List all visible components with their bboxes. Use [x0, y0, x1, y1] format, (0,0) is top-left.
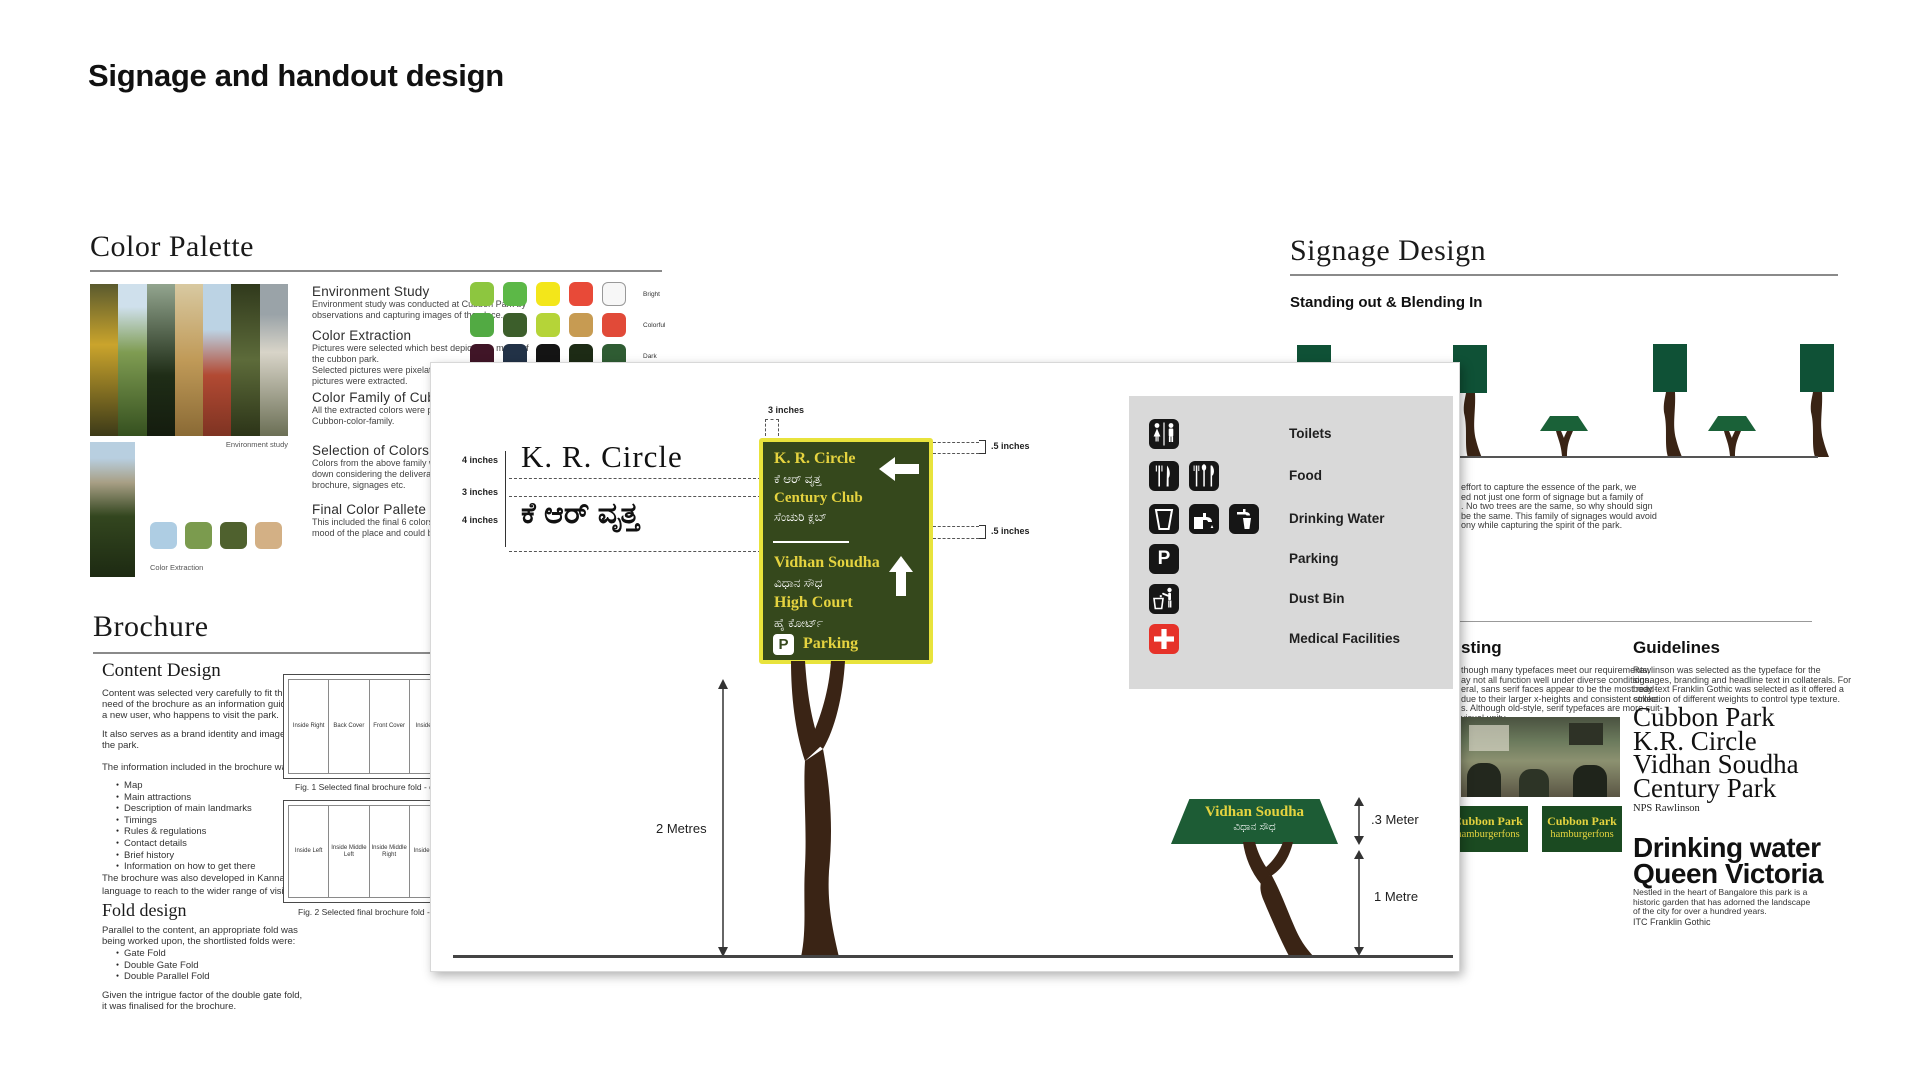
para-line: language to reach to the wider range of …	[102, 885, 302, 898]
section-divider-line	[1440, 621, 1812, 622]
sign-vidhan-soudha-kannada: ವಿಧಾನ ಸೌಧ	[774, 576, 822, 591]
swatch	[602, 313, 626, 337]
photo-slice	[118, 284, 146, 436]
bullet-item: Information on how to get there	[116, 861, 256, 873]
environment-study-photo	[90, 284, 288, 436]
extraction-swatch	[220, 522, 247, 549]
serif-specimen-caption: NPS Rawlinson	[1633, 803, 1700, 814]
cutlery-icon	[1189, 461, 1219, 491]
photo-slice	[175, 284, 203, 436]
photo-slice	[231, 284, 259, 436]
tall-tree-sign-3	[1648, 344, 1692, 459]
typeface-testing-photo	[1461, 717, 1620, 797]
tap-icon	[1189, 504, 1219, 534]
direction-sign: K. R. Circle ಕೆ ಆರ್ ವೃತ್ತ Century Club ಸ…	[759, 438, 933, 664]
guidelines-header: Guidelines	[1633, 638, 1720, 658]
typeface-testing-header: sting	[1461, 638, 1502, 658]
para-line: a new user, who happens to visit the par…	[102, 710, 305, 721]
fig-panel: Front Cover	[370, 680, 410, 773]
guidelines-body: Rawlinson was selected as the typeface f…	[1633, 666, 1851, 704]
brochure-underline	[93, 652, 438, 654]
badge-line2: hamburgerfons	[1448, 829, 1528, 840]
signage-design-underline	[1290, 274, 1838, 276]
dim-bracket	[979, 525, 986, 539]
para-line: it was finalised for the brochure.	[102, 1001, 302, 1012]
palette-swatch-grid: Bright Colorful Dark	[470, 282, 665, 368]
para-line: the park.	[102, 740, 299, 751]
dim-4-inches-top: 4 inches	[456, 455, 498, 465]
guide-dash	[509, 478, 761, 479]
brochure-para4: The brochure was also developed in Kanna…	[102, 872, 302, 898]
dim-bracket	[979, 440, 986, 454]
franklin-specimen-body: Nestled in the heart of Bangalore this p…	[1633, 888, 1810, 917]
dim-1-metre: 1 Metre	[1374, 889, 1418, 904]
extraction-swatches	[150, 522, 282, 549]
sign-century-club: Century Club	[774, 490, 863, 507]
medical-cross-icon	[1149, 624, 1179, 654]
fig-panel: Inside Left	[289, 806, 329, 897]
extraction-caption: Color Extraction	[150, 563, 203, 572]
dim-3-inches-border: 3 inches	[768, 405, 804, 415]
legend-label-parking: Parking	[1289, 544, 1339, 574]
color-extraction-photo	[90, 442, 135, 577]
swatch	[536, 282, 560, 306]
para-line: Content was selected very carefully to f…	[102, 688, 305, 699]
photo-detail	[1469, 725, 1509, 751]
brochure-para3: The information included in the brochure…	[102, 762, 294, 773]
page: Signage and handout design Color Palette…	[0, 0, 1920, 1080]
small-sign-kannada: ವಿಧಾನ ಸೌಧ	[1171, 821, 1338, 834]
color-palette-header: Color Palette	[90, 230, 254, 264]
para-line: Given the intrigue factor of the double …	[102, 990, 302, 1001]
spec-kannada-text: ಕೆ ಆರ್ ವೃತ್ತ	[521, 497, 639, 531]
swatch-row-label: Dark	[643, 353, 657, 360]
swatch	[503, 282, 527, 306]
guide-dash	[933, 526, 979, 527]
extraction-swatch	[150, 522, 177, 549]
swatch	[569, 313, 593, 337]
swatch-row-colorful: Colorful	[470, 313, 665, 337]
bullet-item: Rules & regulations	[116, 826, 256, 838]
legend-label-drinking-water: Drinking Water	[1289, 504, 1385, 534]
sign-divider	[773, 541, 849, 543]
photo-slice	[90, 284, 118, 436]
signage-spec-panel: 4 inches 3 inches 4 inches K. R. Circle …	[430, 362, 1460, 972]
fig1-panels: Inside Right Back Cover Front Cover Insi…	[288, 679, 450, 774]
color-palette-underline	[90, 270, 662, 272]
para-line: being worked upon, the shortlisted folds…	[102, 936, 298, 947]
small-sign-height-arrow	[1353, 797, 1365, 845]
fig-panel: Back Cover	[329, 680, 369, 773]
fold-design-title: Fold design	[102, 900, 187, 921]
short-tree-sign-1	[1540, 416, 1588, 458]
dim-point3-meter: .3 Meter	[1371, 812, 1419, 827]
swatch	[602, 282, 626, 306]
signage-intro-text: effort to capture the essence of the par…	[1461, 483, 1657, 531]
dim-half-inch-top: .5 inches	[991, 441, 1030, 451]
standing-out-subheader: Standing out & Blending In	[1290, 294, 1482, 311]
parking-p-icon: P	[773, 634, 794, 655]
small-pole-height-arrow	[1353, 850, 1365, 956]
fork-knife-icon	[1149, 461, 1179, 491]
extraction-swatch	[255, 522, 282, 549]
para-line: need of the brochure as an information g…	[102, 699, 305, 710]
specimen-body-line: of the city for over a hundred years.	[1633, 907, 1810, 917]
fig2-panels: Inside Left Inside Middle Left Inside Mi…	[288, 805, 450, 898]
guide-dash	[933, 453, 979, 454]
dim-bracket-top	[765, 419, 779, 436]
photo-slice	[147, 284, 175, 436]
rawlinson-specimen: Cubbon Park K.R. Circle Vidhan Soudha Ce…	[1633, 706, 1799, 800]
bullet-item: Map	[116, 780, 256, 792]
sign-high-court: High Court	[774, 594, 853, 612]
badge-line2: hamburgerfons	[1542, 829, 1622, 840]
intro-line: ony while capturing the spirit of the pa…	[1461, 521, 1657, 531]
dim-half-inch-mid: .5 inches	[991, 526, 1030, 536]
toilets-icon	[1149, 419, 1179, 449]
sign-kr-circle: K. R. Circle	[774, 450, 855, 468]
dim-tick-line	[505, 451, 506, 547]
dustbin-icon	[1149, 584, 1179, 614]
para-line: The brochure was also developed in Kanna…	[102, 872, 302, 885]
bullet-item: Gate Fold	[116, 948, 210, 960]
swatch-row-label: Bright	[643, 291, 660, 298]
fig-panel: Inside Middle Right	[370, 806, 410, 897]
guide-dash	[933, 538, 979, 539]
sign-kr-circle-kannada: ಕೆ ಆರ್ ವೃತ್ತ	[774, 472, 821, 487]
height-dimension-arrow	[717, 679, 729, 957]
fig-panel: Inside Right	[289, 680, 329, 773]
swatch	[470, 282, 494, 306]
badge-line1: Cubbon Park	[1542, 806, 1622, 829]
sans-specimen-caption: ITC Franklin Gothic	[1633, 917, 1711, 927]
legend-label-toilets: Toilets	[1289, 419, 1332, 449]
photo-slice	[260, 284, 288, 436]
brochure-para6: Given the intrigue factor of the double …	[102, 990, 302, 1012]
short-tree-sign-2	[1708, 416, 1756, 458]
bullet-item: Timings	[116, 815, 256, 827]
cubbon-park-badge-1: Cubbon Park hamburgerfons	[1448, 806, 1528, 852]
fold-bullet-list: Gate Fold Double Gate Fold Double Parall…	[102, 948, 210, 983]
photo-person	[1573, 765, 1607, 797]
panel-ground-line	[453, 955, 1453, 958]
bullet-item: Double Parallel Fold	[116, 971, 210, 983]
badge-line1: Cubbon Park	[1448, 806, 1528, 829]
bullet-item: Brief history	[116, 850, 256, 862]
cubbon-park-badge-2: Cubbon Park hamburgerfons	[1542, 806, 1622, 852]
page-title: Signage and handout design	[88, 58, 504, 94]
tall-tree-sign-4	[1795, 344, 1839, 459]
icon-legend-panel: Toilets Food	[1129, 396, 1453, 689]
trees-ground-line	[1440, 456, 1818, 458]
photo-slice	[203, 284, 231, 436]
brochure-bullet-list: Map Main attractions Description of main…	[102, 780, 256, 873]
dim-3-inches-gap: 3 inches	[456, 487, 498, 497]
bullet-item: Main attractions	[116, 792, 256, 804]
legend-label-dust-bin: Dust Bin	[1289, 584, 1345, 614]
guide-dash	[509, 496, 761, 497]
franklin-specimen-line2: Queen Victoria	[1633, 861, 1823, 887]
spec-latin-text: K. R. Circle	[521, 439, 683, 475]
legend-label-medical: Medical Facilities	[1289, 624, 1400, 654]
signage-design-header: Signage Design	[1290, 234, 1486, 268]
big-tree-trunk	[731, 661, 901, 959]
fig-panel: Inside Middle Left	[329, 806, 369, 897]
small-tree-trunk	[1213, 842, 1333, 956]
brochure-para2: It also serves as a brand identity and i…	[102, 729, 299, 751]
sign-high-court-kannada: ಹೈ ಕೋರ್ಟ್	[774, 616, 823, 631]
sign-century-club-kannada: ಸೆಂಚುರಿ ಕ್ಲಬ್	[774, 510, 827, 525]
small-sign-latin: Vidhan Soudha	[1171, 799, 1338, 821]
swatch-row-label: Colorful	[643, 322, 665, 329]
brochure-para5: Parallel to the content, an appropriate …	[102, 925, 298, 947]
sign-parking-label: Parking	[803, 635, 858, 653]
guide-dash	[933, 442, 979, 443]
photo-person	[1467, 763, 1501, 797]
cup-icon	[1149, 504, 1179, 534]
bullet-item: Contact details	[116, 838, 256, 850]
para-line: Parallel to the content, an appropriate …	[102, 925, 298, 936]
specimen-line: Century Park	[1633, 777, 1799, 801]
left-arrow-icon	[879, 456, 919, 482]
swatch	[470, 313, 494, 337]
brochure-header: Brochure	[93, 610, 209, 644]
guide-dash	[509, 551, 761, 552]
brochure-para1: Content was selected very carefully to f…	[102, 688, 305, 721]
legend-label-food: Food	[1289, 461, 1322, 491]
swatch	[569, 282, 593, 306]
para-line: It also serves as a brand identity and i…	[102, 729, 299, 740]
parking-icon: P	[1149, 544, 1179, 574]
swatch-row-bright: Bright	[470, 282, 665, 306]
bullet-item: Description of main landmarks	[116, 803, 256, 815]
photo-detail	[1569, 723, 1603, 745]
swatch	[536, 313, 560, 337]
swatch	[503, 313, 527, 337]
small-tree-sign: Vidhan Soudha ವಿಧಾನ ಸೌಧ	[1171, 799, 1338, 844]
content-design-title: Content Design	[102, 660, 221, 682]
extraction-swatch	[185, 522, 212, 549]
sign-vidhan-soudha: Vidhan Soudha	[774, 554, 880, 572]
up-arrow-icon	[887, 556, 915, 596]
photo-person	[1519, 769, 1549, 797]
dim-4-inches-bottom: 4 inches	[456, 515, 498, 525]
bullet-item: Double Gate Fold	[116, 960, 210, 972]
tap-glass-icon	[1229, 504, 1259, 534]
dim-2-metres: 2 Metres	[656, 821, 707, 836]
